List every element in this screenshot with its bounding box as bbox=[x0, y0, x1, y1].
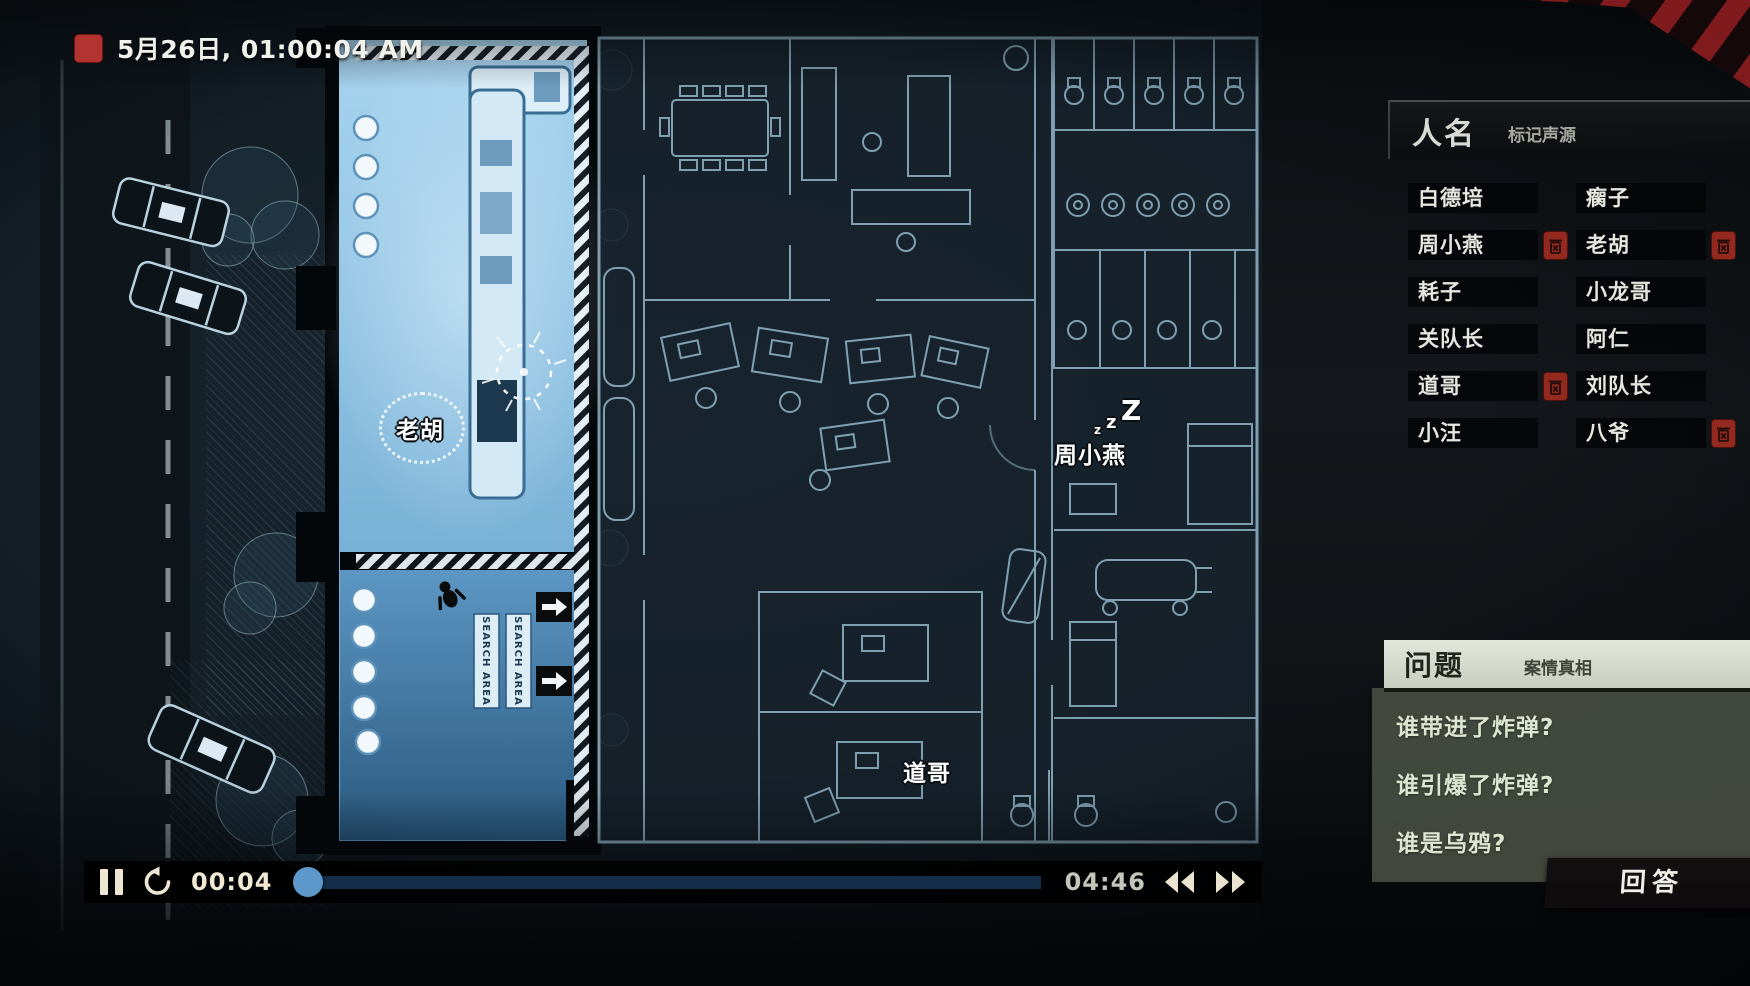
search-area-text: SEARCH AREA bbox=[480, 616, 491, 706]
fast-forward-button[interactable] bbox=[1214, 870, 1246, 894]
name-chip[interactable]: 小汪 bbox=[1408, 418, 1538, 448]
question-item: 谁带进了炸弹? bbox=[1396, 708, 1554, 742]
sleep-icon: z bbox=[1094, 423, 1101, 437]
fast-forward-icon bbox=[1214, 870, 1246, 894]
name-chip[interactable]: 阿仁 bbox=[1576, 324, 1706, 354]
name-chip[interactable]: 刘队长 bbox=[1576, 371, 1706, 401]
recording-hud: 5月26日, 01:00:04 AM bbox=[74, 30, 424, 66]
questions-panel-header: 问题 案情真相 bbox=[1384, 640, 1750, 692]
restart-button[interactable] bbox=[141, 866, 173, 898]
name-chip[interactable]: 八爷 bbox=[1576, 418, 1706, 448]
sleep-icon: z bbox=[1106, 412, 1116, 433]
question-item: 谁引爆了炸弹? bbox=[1396, 766, 1554, 800]
character-label-zhouxiaoyan[interactable]: 周小燕 bbox=[1054, 436, 1126, 470]
total-time: 04:46 bbox=[1065, 868, 1146, 896]
search-area-text: SEARCH AREA bbox=[512, 616, 523, 706]
sleep-icon: Z bbox=[1121, 394, 1141, 427]
progress-thumb[interactable] bbox=[293, 867, 323, 897]
name-chip[interactable]: 瘸子 bbox=[1576, 183, 1706, 213]
blueprint-offices bbox=[599, 38, 1257, 842]
name-chip[interactable]: 耗子 bbox=[1408, 277, 1538, 307]
answer-button[interactable]: 回答 bbox=[1544, 857, 1750, 908]
current-time: 00:04 bbox=[191, 868, 272, 896]
remove-tag-icon[interactable] bbox=[1711, 231, 1736, 260]
questions-panel-title: 问题 bbox=[1404, 644, 1464, 684]
name-chip[interactable]: 关队长 bbox=[1408, 324, 1538, 354]
pause-icon bbox=[100, 869, 108, 895]
name-chip[interactable]: 道哥 bbox=[1408, 371, 1538, 401]
character-label-laohu[interactable]: 老胡 bbox=[396, 411, 444, 445]
arrow-sign bbox=[536, 666, 572, 696]
names-panel-subtitle: 标记声源 bbox=[1508, 121, 1576, 146]
name-chip[interactable]: 周小燕 bbox=[1408, 230, 1538, 260]
remove-tag-icon[interactable] bbox=[1543, 372, 1568, 401]
question-item: 谁是乌鸦? bbox=[1396, 824, 1506, 858]
name-chip[interactable]: 小龙哥 bbox=[1576, 277, 1706, 307]
questions-panel-subtitle: 案情真相 bbox=[1524, 654, 1592, 679]
progress-track[interactable] bbox=[296, 876, 1040, 889]
rewind-icon bbox=[1164, 870, 1196, 894]
names-panel-header: 人名 标记声源 bbox=[1388, 100, 1750, 159]
recording-icon bbox=[74, 34, 103, 63]
character-label-daoge[interactable]: 道哥 bbox=[903, 754, 951, 788]
pause-button[interactable] bbox=[100, 869, 123, 895]
arrow-sign bbox=[536, 592, 572, 622]
remove-tag-icon[interactable] bbox=[1711, 419, 1736, 448]
playback-bar: 00:04 04:46 bbox=[84, 861, 1262, 903]
rewind-button[interactable] bbox=[1164, 870, 1196, 894]
names-panel-title: 人名 bbox=[1412, 109, 1476, 153]
name-chip[interactable]: 老胡 bbox=[1576, 230, 1706, 260]
datetime-display: 5月26日, 01:00:04 AM bbox=[117, 30, 424, 66]
remove-tag-icon[interactable] bbox=[1543, 231, 1568, 260]
restart-icon bbox=[141, 866, 173, 898]
name-chip[interactable]: 白德培 bbox=[1408, 183, 1538, 213]
pause-icon bbox=[115, 869, 123, 895]
